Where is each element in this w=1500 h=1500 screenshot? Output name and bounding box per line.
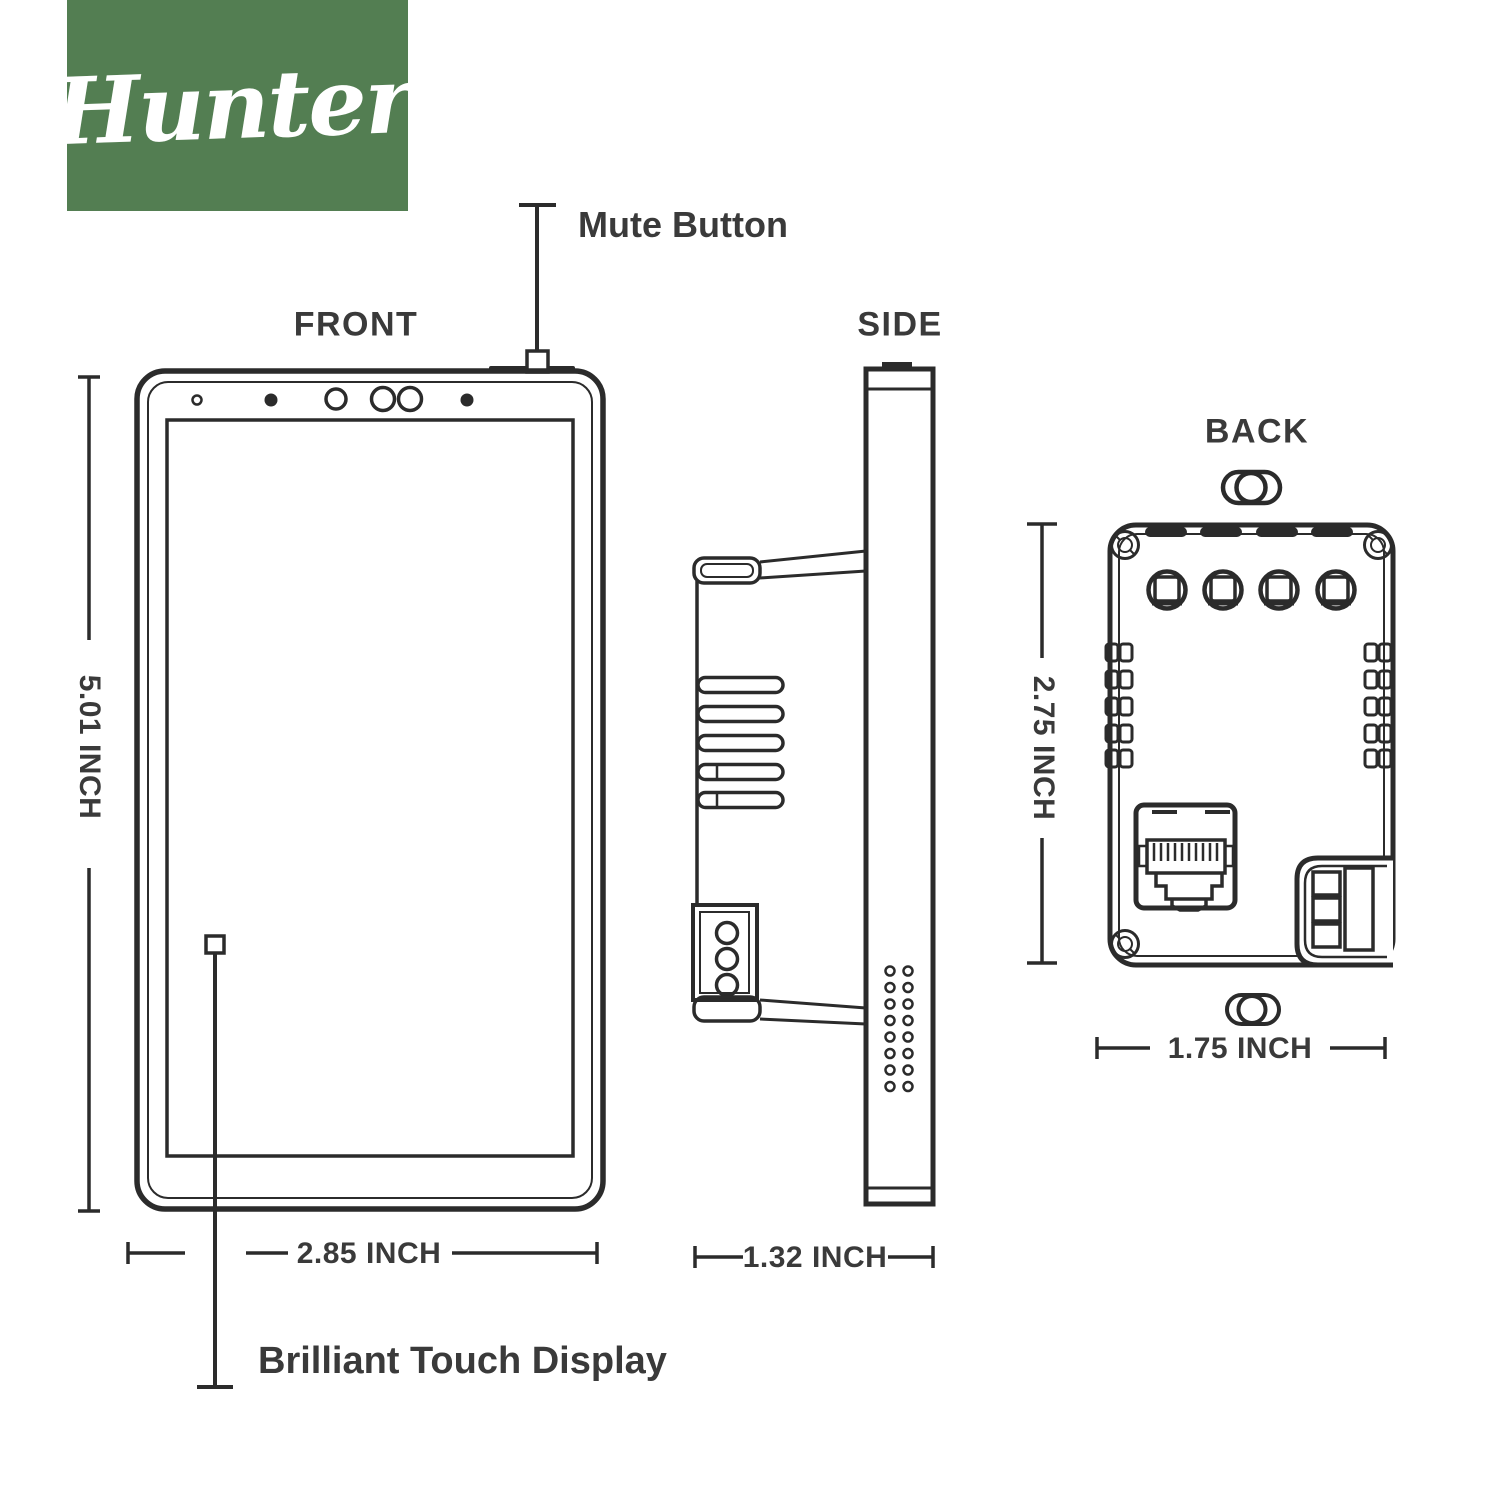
front-camera-icon bbox=[326, 389, 346, 409]
ethernet-jack-icon bbox=[1136, 805, 1235, 910]
side-terminal-block bbox=[693, 905, 757, 1000]
front-sensor-icon bbox=[193, 396, 202, 405]
touch-display-marker bbox=[206, 936, 224, 953]
side-panel-outline bbox=[866, 369, 933, 1204]
side-view-drawing bbox=[693, 362, 933, 1204]
front-sensor-icon bbox=[461, 394, 474, 407]
wire-clips-right bbox=[1365, 644, 1391, 767]
front-body-outline bbox=[137, 371, 603, 1209]
back-view-drawing bbox=[1106, 472, 1393, 1024]
dim-front-width-label: 2.85 INCH bbox=[297, 1237, 442, 1271]
dim-back-height-label: 2.75 INCH bbox=[1026, 676, 1060, 821]
back-view-label: BACK bbox=[1205, 413, 1309, 452]
front-view-label: FRONT bbox=[294, 306, 419, 345]
touch-display-leader-line bbox=[197, 936, 233, 1387]
front-sensor-icon bbox=[372, 388, 395, 411]
front-sensor-icon bbox=[399, 388, 422, 411]
front-sensor-icon bbox=[265, 394, 278, 407]
side-view-label: SIDE bbox=[857, 306, 942, 345]
front-view-drawing bbox=[137, 351, 603, 1209]
product-dimension-diagram: Hunter . bbox=[0, 0, 1500, 1500]
dim-front-height-label: 5.01 INCH bbox=[72, 675, 106, 820]
terminal-screws bbox=[1149, 572, 1355, 609]
dim-back-width-label: 1.75 INCH bbox=[1168, 1032, 1313, 1066]
toggle-pill-icon bbox=[1223, 472, 1280, 503]
side-top-flange bbox=[694, 558, 760, 583]
toggle-pill-icon bbox=[1227, 995, 1279, 1024]
vent-slots bbox=[1145, 527, 1353, 537]
side-fins bbox=[698, 678, 783, 808]
dim-side-depth-label: 1.32 INCH bbox=[743, 1241, 888, 1275]
mute-button-leader-line bbox=[519, 205, 556, 351]
front-screen bbox=[167, 420, 573, 1156]
touch-display-label: Brilliant Touch Display bbox=[258, 1340, 667, 1383]
mute-button-label: Mute Button bbox=[578, 204, 788, 246]
back-terminal-block bbox=[1297, 858, 1393, 965]
speaker-grille-icon bbox=[886, 967, 913, 1092]
